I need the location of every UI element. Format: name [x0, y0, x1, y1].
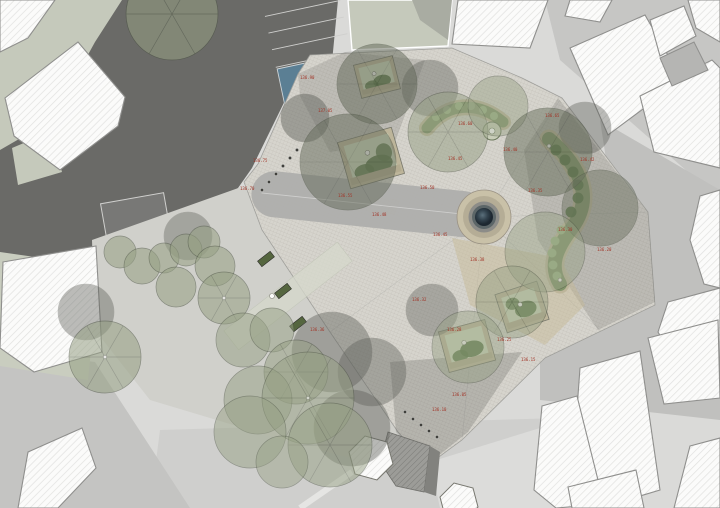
tree-canopy: [156, 267, 196, 307]
spot-level-annotation: 136.40: [503, 147, 518, 152]
spot-level-annotation: 136.35: [528, 188, 543, 193]
fountain-water: [475, 208, 493, 226]
fountain: [457, 190, 511, 244]
spot-level-annotation: 136.10: [432, 407, 447, 412]
tree-canopy: [256, 436, 308, 488]
bollard: [281, 164, 284, 167]
tree-canopy: [432, 311, 504, 383]
bollard: [411, 417, 414, 420]
spot-level-annotation: 136.42: [580, 157, 595, 162]
green-roof-building: [348, 0, 452, 50]
spot-level-annotation: 136.38: [470, 257, 485, 262]
spot-level-annotation: 136.30: [558, 227, 573, 232]
spot-level-annotation: 136.90: [300, 75, 315, 80]
bollard: [288, 156, 291, 159]
bollard: [427, 429, 430, 432]
spot-level-annotation: 136.55: [338, 193, 353, 198]
spot-level-annotation: 136.32: [412, 297, 427, 302]
tree-trunk: [270, 294, 275, 299]
bollard: [403, 410, 406, 413]
spot-level-annotation: 136.45: [433, 232, 448, 237]
bollard: [260, 188, 263, 191]
spot-level-annotation: 136.05: [452, 392, 467, 397]
spot-level-annotation: 136.28: [447, 327, 462, 332]
spot-level-annotation: 137.05: [318, 108, 333, 113]
spot-level-annotation: 136.48: [372, 212, 387, 217]
bollard: [267, 180, 270, 183]
spot-level-annotation: 136.75: [253, 158, 268, 163]
spot-level-annotation: 136.50: [420, 185, 435, 190]
spot-level-annotation: 136.36: [310, 327, 325, 332]
site-plan-canvas: ♿: [0, 0, 720, 508]
bollard: [295, 148, 298, 151]
spot-level-annotation: 136.25: [497, 337, 512, 342]
spot-level-annotation: 136.60: [458, 121, 473, 126]
bollard: [419, 423, 422, 426]
bollard: [435, 435, 438, 438]
spot-level-annotation: 136.65: [545, 113, 560, 118]
spot-level-annotation: 136.20: [597, 247, 612, 252]
spot-level-annotation: 136.15: [521, 357, 536, 362]
spot-level-annotation: 136.45: [448, 156, 463, 161]
site-plan-drawing: ♿: [0, 0, 720, 508]
bollard: [274, 172, 277, 175]
spot-level-annotation: 136.70: [240, 186, 255, 191]
